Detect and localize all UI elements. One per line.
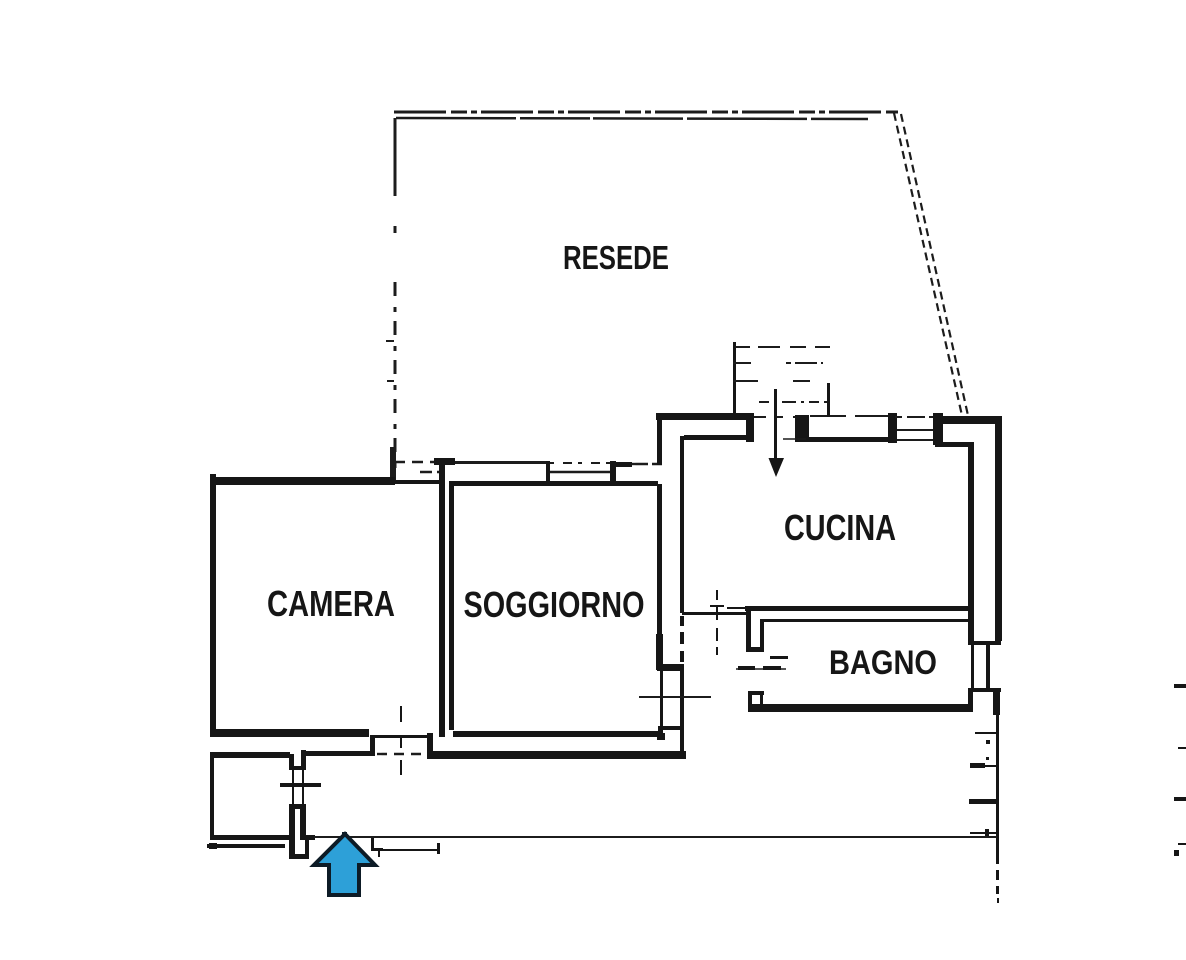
svg-text:BAGNO: BAGNO [829,644,937,682]
svg-text:CAMERA: CAMERA [267,583,395,624]
svg-text:CUCINA: CUCINA [784,507,896,548]
svg-text:SOGGIORNO: SOGGIORNO [464,584,645,625]
svg-text:RESEDE: RESEDE [563,239,669,276]
